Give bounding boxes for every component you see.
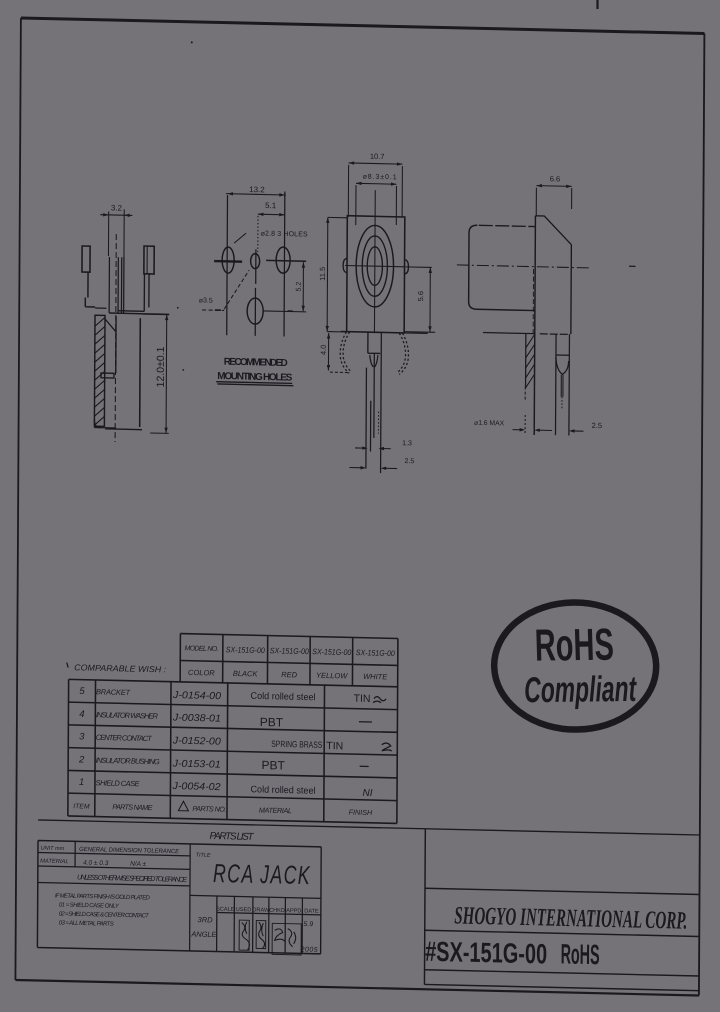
svg-text:TITLE: TITLE	[196, 853, 211, 859]
svg-text:SX-151G-00: SX-151G-00	[226, 645, 266, 655]
svg-text:2005: 2005	[300, 946, 318, 953]
svg-text:UNIT mm: UNIT mm	[41, 846, 65, 853]
svg-text:INSULATOR WASHER: INSULATOR WASHER	[96, 710, 159, 720]
svg-text:TIN: TIN	[354, 693, 371, 705]
svg-text:5.1: 5.1	[265, 201, 277, 210]
svg-text:RED: RED	[281, 670, 297, 679]
svg-text:Cold rolled steel: Cold rolled steel	[251, 691, 316, 703]
svg-text:5: 5	[79, 686, 85, 697]
svg-text:Compliant: Compliant	[524, 668, 638, 710]
svg-text:MODEL NO.: MODEL NO.	[185, 645, 219, 653]
svg-text:COLOR: COLOR	[188, 668, 215, 678]
svg-text:N/A ±: N/A ±	[130, 861, 146, 868]
svg-text:PARTS LIST: PARTS LIST	[210, 831, 255, 843]
svg-text:3RD: 3RD	[198, 915, 214, 924]
svg-text:DRAW: DRAW	[252, 907, 270, 913]
svg-text:11.5: 11.5	[318, 267, 327, 281]
svg-text:FINISH: FINISH	[349, 808, 373, 818]
svg-text:YELLOW: YELLOW	[316, 671, 348, 681]
svg-text:PARTS NO.: PARTS NO.	[192, 804, 226, 814]
svg-text:BLACK: BLACK	[233, 669, 259, 679]
svg-text:RoHS: RoHS	[561, 938, 600, 970]
svg-text:J-0154-00: J-0154-00	[172, 690, 222, 702]
svg-text:Cold rolled steel: Cold rolled steel	[250, 784, 315, 796]
svg-text:2: 2	[78, 754, 85, 765]
svg-text:NI: NI	[362, 788, 372, 799]
svg-text:12.0±0.1: 12.0±0.1	[155, 346, 167, 387]
svg-text:INSULATOR BUSHING: INSULATOR BUSHING	[96, 756, 160, 766]
svg-text:3.2: 3.2	[111, 203, 123, 212]
svg-text:1: 1	[79, 777, 84, 788]
svg-text:J-0152-00: J-0152-00	[172, 735, 222, 747]
svg-text:SHIELD CASE: SHIELD CASE	[96, 778, 141, 788]
svg-text:3: 3	[79, 731, 85, 742]
svg-text:MATERIAL: MATERIAL	[40, 859, 69, 866]
svg-text:SPRING BRASS: SPRING BRASS	[271, 739, 322, 750]
svg-text:SX-151G-00: SX-151G-00	[312, 647, 352, 657]
svg-text:5.2: 5.2	[296, 282, 303, 292]
svg-text:RECOMMENDED: RECOMMENDED	[224, 357, 288, 369]
svg-text:6.6: 6.6	[550, 174, 560, 183]
svg-text:DATE: DATE	[304, 909, 319, 915]
svg-text:BRACKET: BRACKET	[96, 687, 131, 697]
svg-text:TIN: TIN	[326, 740, 343, 752]
svg-text:RoHS: RoHS	[534, 619, 614, 671]
svg-text:PARTS NAME: PARTS NAME	[112, 802, 152, 812]
svg-text:PBT: PBT	[260, 715, 284, 730]
svg-text:1.3: 1.3	[402, 440, 412, 447]
svg-text:SX-151G-00: SX-151G-00	[270, 646, 310, 656]
svg-text:COMPARABLE WISH :: COMPARABLE WISH :	[74, 662, 167, 674]
svg-text:PBT: PBT	[261, 758, 285, 773]
svg-text:5.6: 5.6	[416, 291, 425, 302]
svg-text:10.7: 10.7	[370, 152, 385, 161]
svg-text:⌀3.5: ⌀3.5	[199, 297, 213, 304]
svg-text:CENTER CONTACT: CENTER CONTACT	[96, 733, 153, 743]
svg-text:4: 4	[79, 709, 84, 720]
svg-text:4.0 ± 0.3: 4.0 ± 0.3	[83, 859, 109, 867]
svg-text:ITEM: ITEM	[73, 803, 90, 810]
svg-text:J-0054-02: J-0054-02	[171, 781, 221, 793]
svg-text:ANGLE: ANGLE	[190, 929, 217, 939]
svg-text:USED: USED	[236, 907, 252, 913]
svg-text:4.0: 4.0	[319, 345, 328, 356]
svg-text:WHITE: WHITE	[363, 672, 388, 682]
svg-text:13.2: 13.2	[249, 185, 265, 194]
svg-text:J-0038-01: J-0038-01	[172, 712, 221, 724]
svg-text:SHOGYO INTERNATIONAL CORP.: SHOGYO INTERNATIONAL CORP.	[454, 902, 687, 934]
svg-text:MATERIAL: MATERIAL	[259, 805, 292, 815]
svg-text:03 = ALL METAL PARTS: 03 = ALL METAL PARTS	[59, 920, 114, 927]
svg-text:#SX-151G-00: #SX-151G-00	[425, 936, 547, 970]
svg-text:⌀1.6 MAX: ⌀1.6 MAX	[474, 420, 504, 428]
svg-text:⌀8.3±0.1: ⌀8.3±0.1	[363, 174, 397, 182]
svg-text:5.9: 5.9	[303, 921, 313, 928]
svg-text:2.5: 2.5	[405, 458, 415, 465]
svg-text:SCALE: SCALE	[216, 907, 235, 913]
svg-text:⌀2.8 3 HOLES: ⌀2.8 3 HOLES	[261, 230, 308, 238]
svg-text:APPD: APPD	[286, 908, 301, 914]
svg-text:RCA JACK: RCA JACK	[213, 858, 311, 890]
svg-text:2.5: 2.5	[592, 421, 602, 430]
svg-text:J-0153-01: J-0153-01	[172, 758, 221, 770]
svg-text:CHKD: CHKD	[269, 908, 285, 914]
svg-text:SX-151G-00: SX-151G-00	[356, 648, 396, 658]
